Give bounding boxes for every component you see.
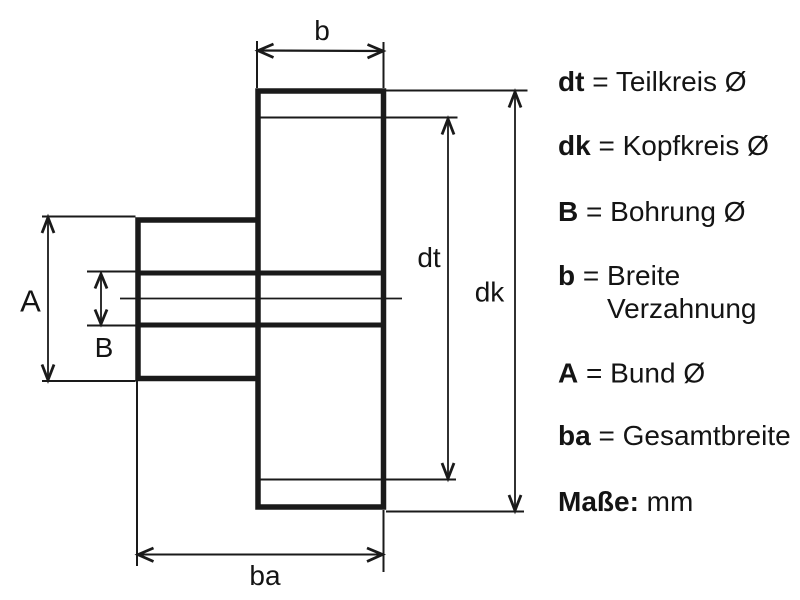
svg-text:b = Breite: b = Breite (558, 260, 680, 291)
svg-text:b: b (314, 15, 330, 46)
svg-text:Verzahnung: Verzahnung (607, 293, 756, 324)
svg-text:ba = Gesamtbreite: ba = Gesamtbreite (558, 420, 791, 451)
svg-text:dt = Teilkreis Ø: dt = Teilkreis Ø (558, 66, 747, 97)
svg-text:B: B (95, 332, 114, 363)
svg-text:B = Bohrung Ø: B = Bohrung Ø (558, 196, 746, 227)
svg-text:Maße: mm: Maße: mm (558, 486, 693, 517)
svg-text:A = Bund Ø: A = Bund Ø (558, 358, 705, 389)
svg-text:dk = Kopfkreis Ø: dk = Kopfkreis Ø (558, 130, 769, 161)
svg-text:ba: ba (249, 560, 281, 591)
svg-text:dt: dt (417, 242, 441, 273)
svg-text:dk: dk (475, 277, 506, 308)
svg-text:A: A (20, 284, 41, 319)
